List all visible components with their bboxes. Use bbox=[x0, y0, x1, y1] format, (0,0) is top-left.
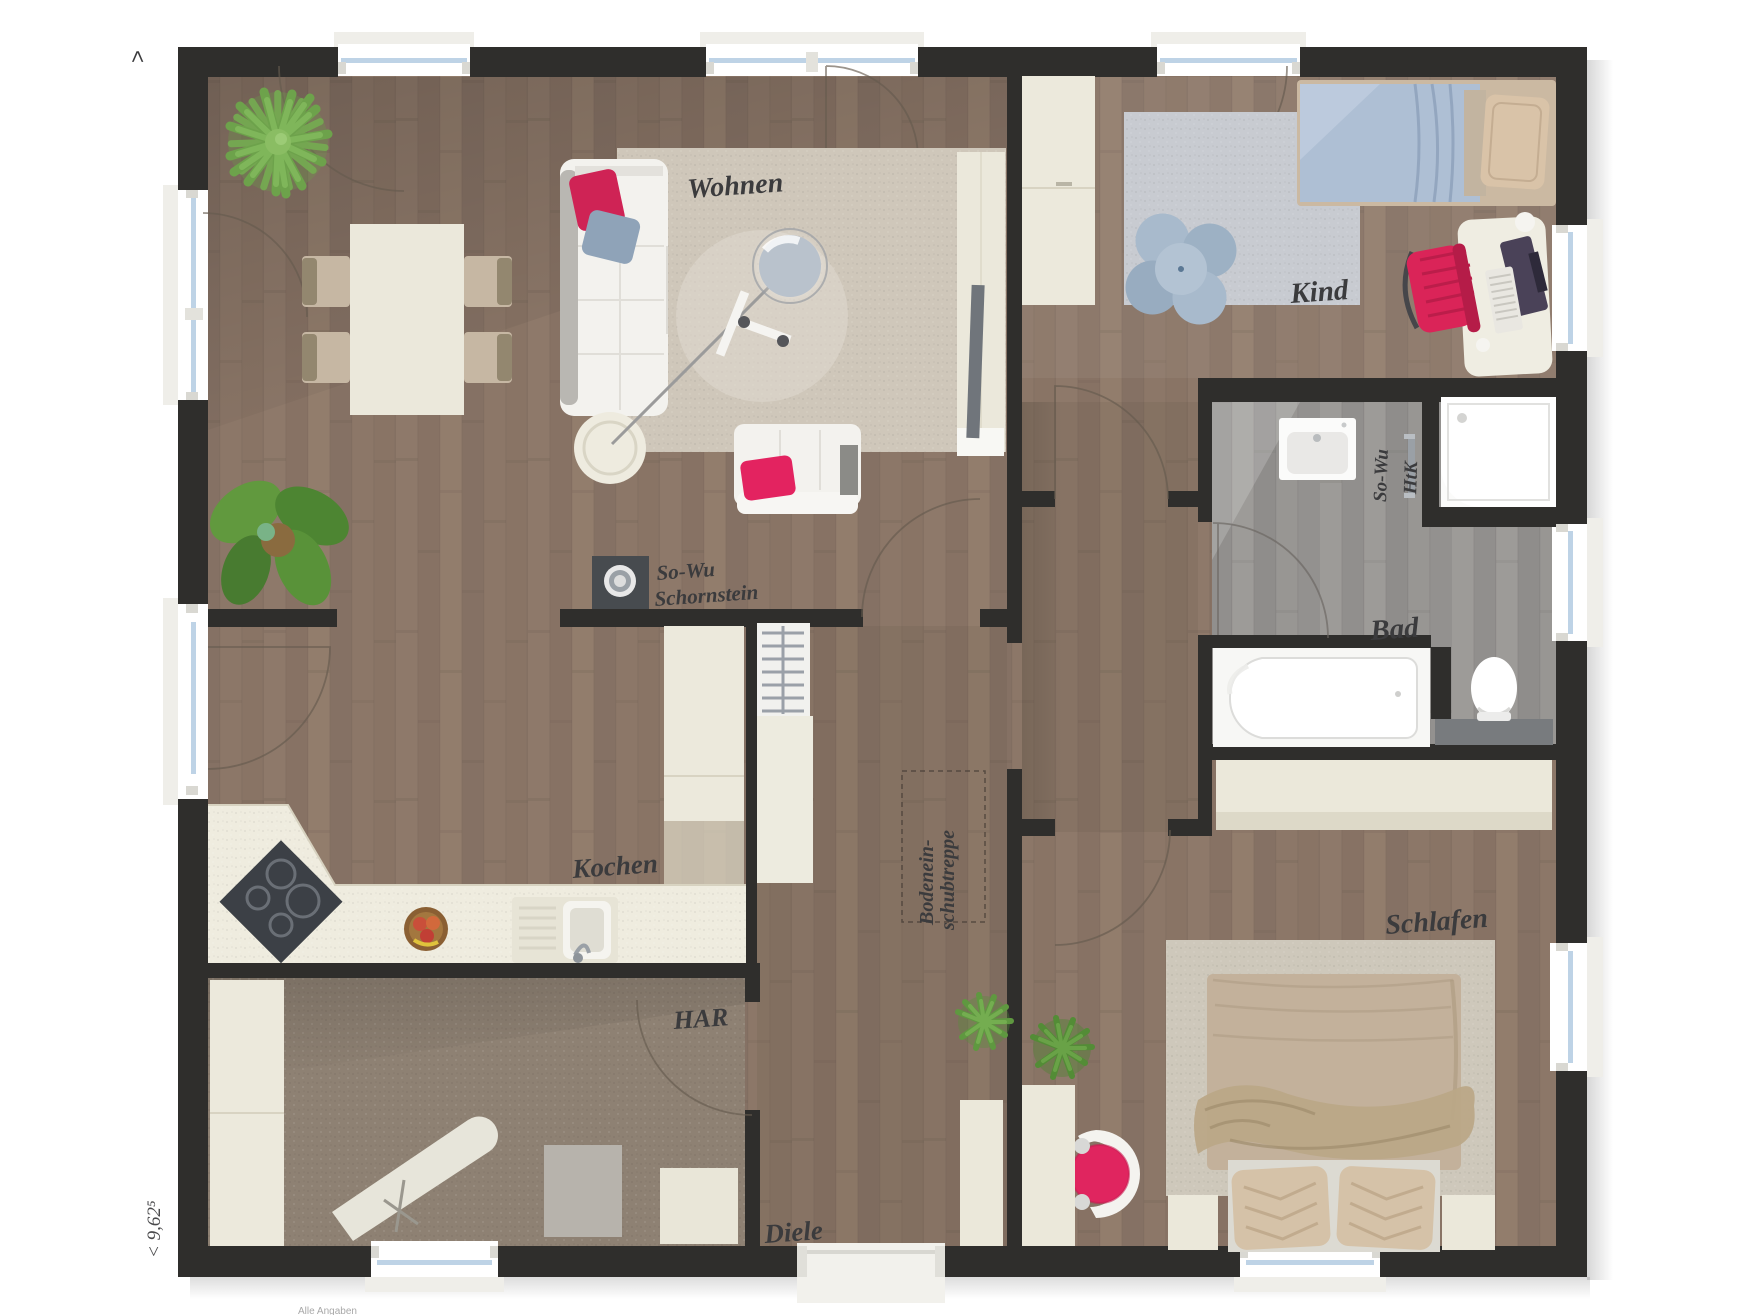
svg-text:Kind: Kind bbox=[1288, 274, 1350, 310]
svg-text:Diele: Diele bbox=[762, 1215, 823, 1249]
svg-text:Kochen: Kochen bbox=[570, 848, 658, 884]
svg-text:Bad: Bad bbox=[1368, 612, 1420, 647]
svg-text:Alle Angaben: Alle Angaben bbox=[298, 1306, 357, 1315]
svg-text:Bodenein-: Bodenein- bbox=[916, 839, 938, 926]
svg-text:HAR: HAR bbox=[671, 1002, 729, 1035]
svg-text:schubtreppe: schubtreppe bbox=[937, 830, 959, 931]
svg-text:>: > bbox=[125, 50, 150, 63]
svg-text:HtK: HtK bbox=[1400, 460, 1422, 496]
svg-text:So-Wu: So-Wu bbox=[1370, 449, 1393, 503]
svg-text:So-Wu: So-Wu bbox=[656, 557, 716, 585]
svg-text:< 9,62⁵: < 9,62⁵ bbox=[144, 1200, 165, 1258]
